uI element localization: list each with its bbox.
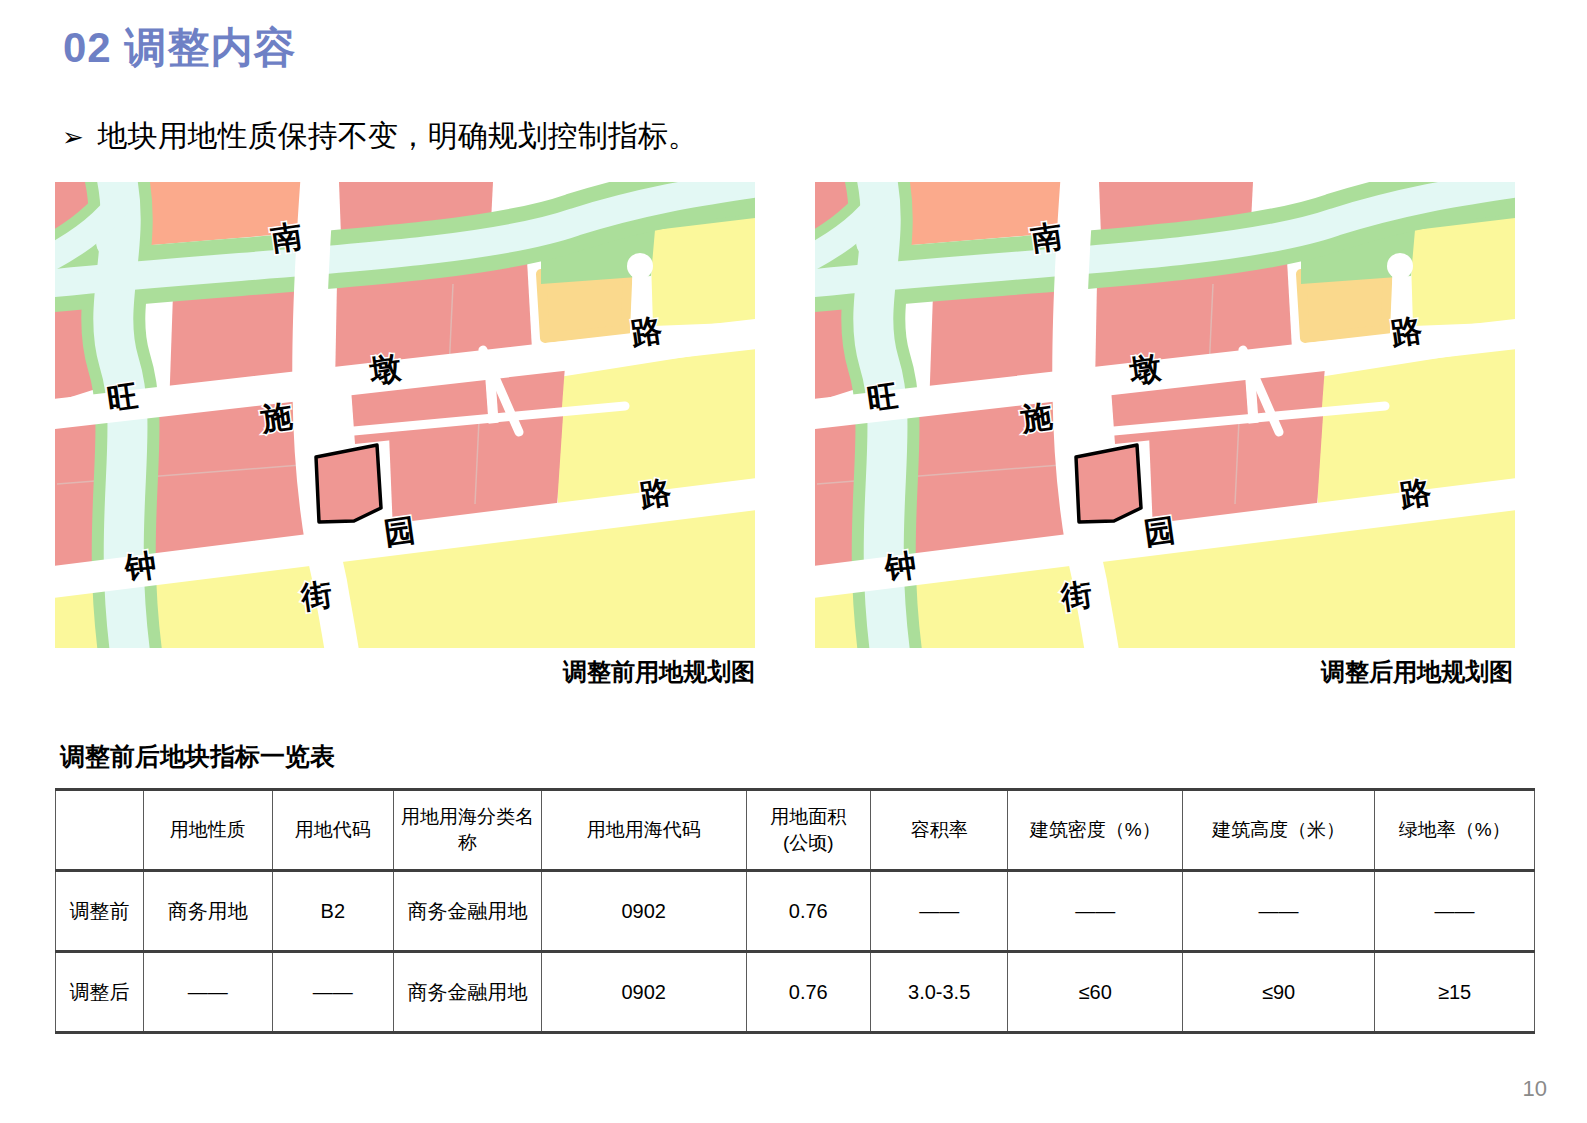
- header-empty: [56, 790, 144, 871]
- land-use-map-after: [815, 182, 1515, 648]
- header-land-sea-code: 用地用海代码: [541, 790, 746, 871]
- header-plot-ratio: 容积率: [870, 790, 1008, 871]
- header-land-use-code: 用地代码: [272, 790, 393, 871]
- cell-land-area: 0.76: [746, 871, 870, 952]
- cell-land-sea-class-name: 商务金融用地: [393, 871, 541, 952]
- cell-building-density: ——: [1008, 871, 1183, 952]
- table-row-after: 调整后 —— —— 商务金融用地 0902 0.76 3.0-3.5 ≤60 ≤…: [56, 952, 1535, 1033]
- cell-land-area: 0.76: [746, 952, 870, 1033]
- indicator-table: 用地性质 用地代码 用地用海分类名称 用地用海代码 用地面积 (公顷) 容积率 …: [55, 788, 1535, 1034]
- page-title: 02 调整内容: [63, 20, 296, 76]
- map-caption-after: 调整后用地规划图: [813, 656, 1515, 688]
- bullet-line: ➢ 地块用地性质保持不变，明确规划控制指标。: [62, 116, 698, 157]
- cell-land-use-nature: 商务用地: [144, 871, 273, 952]
- bullet-text: 地块用地性质保持不变，明确规划控制指标。: [98, 116, 698, 157]
- table-header-row: 用地性质 用地代码 用地用海分类名称 用地用海代码 用地面积 (公顷) 容积率 …: [56, 790, 1535, 871]
- cell-land-use-code: ——: [272, 952, 393, 1033]
- cell-plot-ratio: ——: [870, 871, 1008, 952]
- row-label: 调整后: [56, 952, 144, 1033]
- cell-land-use-code: B2: [272, 871, 393, 952]
- cell-land-use-nature: ——: [144, 952, 273, 1033]
- header-building-density: 建筑密度（%）: [1008, 790, 1183, 871]
- table-row-before: 调整前 商务用地 B2 商务金融用地 0902 0.76 —— —— —— ——: [56, 871, 1535, 952]
- header-land-sea-class-name: 用地用海分类名称: [393, 790, 541, 871]
- map-after-artwork: [815, 182, 1515, 648]
- cell-building-height: ≤90: [1182, 952, 1374, 1033]
- header-green-ratio: 绿地率（%）: [1375, 790, 1535, 871]
- header-land-area: 用地面积 (公顷): [746, 790, 870, 871]
- cell-land-sea-code: 0902: [541, 952, 746, 1033]
- land-use-map-before: 南 旺 墩 路 施 园 路 钟 街: [55, 182, 755, 648]
- header-building-height: 建筑高度（米）: [1182, 790, 1374, 871]
- page-number: 10: [1523, 1076, 1547, 1102]
- cell-building-height: ——: [1182, 871, 1374, 952]
- bullet-arrow-icon: ➢: [62, 124, 84, 150]
- cell-land-sea-code: 0902: [541, 871, 746, 952]
- cell-land-sea-class-name: 商务金融用地: [393, 952, 541, 1033]
- cell-green-ratio: ——: [1375, 871, 1535, 952]
- cell-plot-ratio: 3.0-3.5: [870, 952, 1008, 1033]
- row-label: 调整前: [56, 871, 144, 952]
- map-before-artwork: [55, 182, 755, 648]
- indicator-table-title: 调整前后地块指标一览表: [60, 740, 335, 773]
- map-caption-before: 调整前用地规划图: [55, 656, 757, 688]
- cell-green-ratio: ≥15: [1375, 952, 1535, 1033]
- cell-building-density: ≤60: [1008, 952, 1183, 1033]
- header-land-use-nature: 用地性质: [144, 790, 273, 871]
